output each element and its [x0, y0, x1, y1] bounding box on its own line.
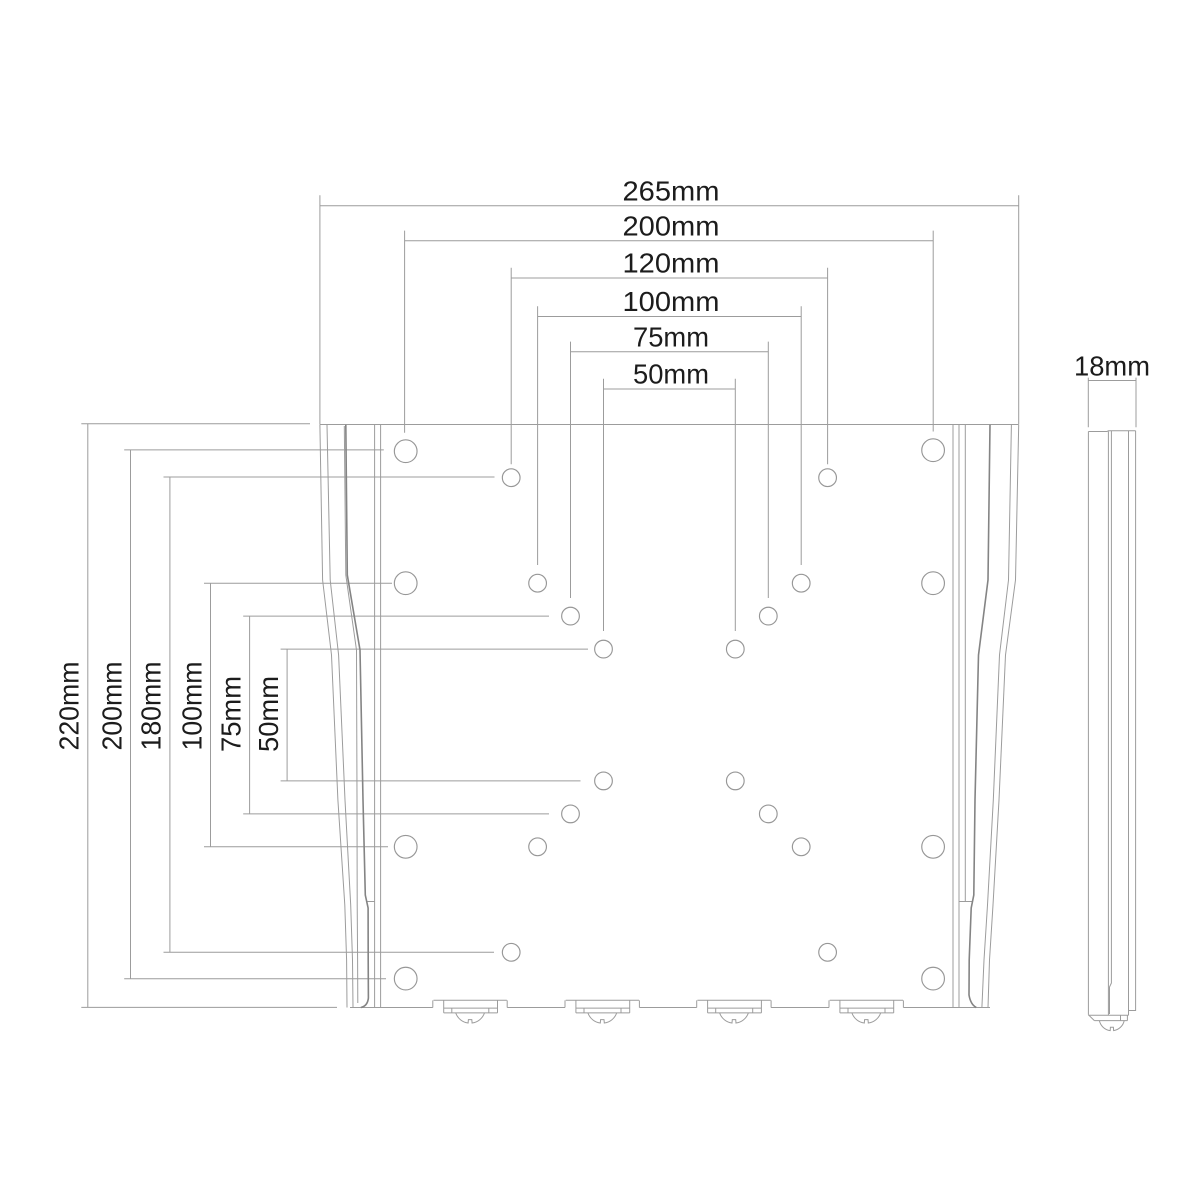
svg-text:100mm: 100mm — [623, 286, 720, 317]
svg-text:50mm: 50mm — [633, 359, 709, 390]
svg-text:75mm: 75mm — [215, 676, 246, 752]
svg-text:220mm: 220mm — [54, 662, 85, 751]
svg-text:265mm: 265mm — [623, 175, 720, 206]
svg-text:180mm: 180mm — [136, 662, 167, 751]
svg-text:50mm: 50mm — [253, 676, 284, 752]
svg-text:100mm: 100mm — [176, 662, 207, 751]
svg-text:75mm: 75mm — [633, 321, 709, 352]
svg-text:120mm: 120mm — [623, 248, 720, 279]
svg-text:200mm: 200mm — [623, 210, 720, 241]
svg-text:18mm: 18mm — [1074, 351, 1150, 382]
svg-text:200mm: 200mm — [96, 662, 127, 751]
